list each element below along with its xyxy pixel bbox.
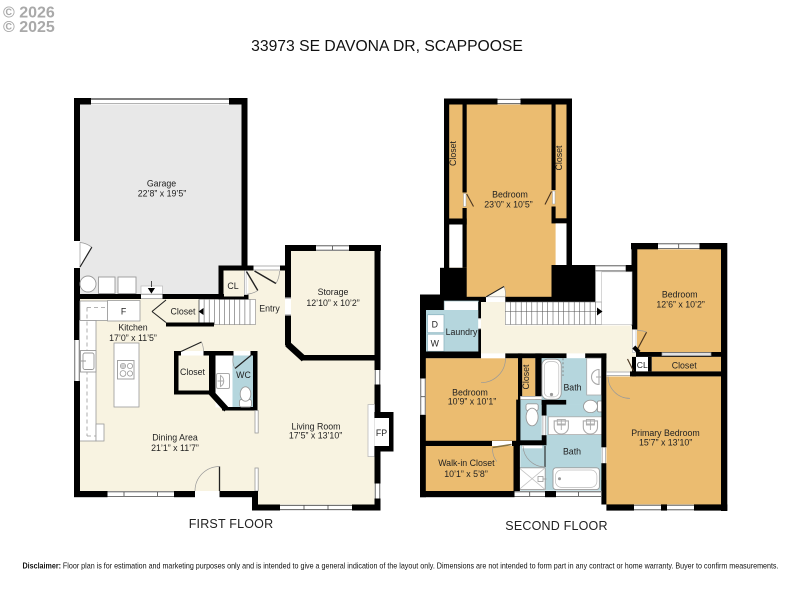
svg-text:D: D bbox=[432, 320, 438, 330]
svg-text:Laundry: Laundry bbox=[446, 327, 478, 337]
svg-text:W: W bbox=[431, 339, 440, 349]
svg-text:Closet: Closet bbox=[180, 367, 205, 377]
svg-text:Closet: Closet bbox=[521, 364, 531, 389]
svg-text:FIRST FLOOR: FIRST FLOOR bbox=[189, 517, 274, 531]
svg-text:17’0” x 11’5”: 17’0” x 11’5” bbox=[109, 333, 157, 343]
svg-text:Primary Bedroom: Primary Bedroom bbox=[631, 428, 699, 438]
svg-text:Bedroom: Bedroom bbox=[662, 290, 698, 300]
svg-text:Entry: Entry bbox=[259, 304, 280, 314]
svg-text:21’1” x 11’7”: 21’1” x 11’7” bbox=[151, 443, 199, 453]
svg-text:CL: CL bbox=[227, 281, 238, 291]
svg-text:Bath: Bath bbox=[563, 447, 581, 457]
svg-text:CL: CL bbox=[637, 360, 648, 370]
svg-text:FP: FP bbox=[376, 428, 387, 438]
svg-text:© 2025: © 2025 bbox=[3, 19, 55, 36]
svg-text:Storage: Storage bbox=[318, 287, 349, 297]
svg-text:12’10” x 10’2”: 12’10” x 10’2” bbox=[306, 298, 359, 308]
svg-text:17’5” x 13’10”: 17’5” x 13’10” bbox=[289, 431, 342, 441]
svg-text:Bedroom: Bedroom bbox=[492, 190, 528, 200]
svg-text:33973 SE DAVONA DR, SCAPPOOSE: 33973 SE DAVONA DR, SCAPPOOSE bbox=[251, 38, 523, 55]
svg-text:10’1” x 5’8”: 10’1” x 5’8” bbox=[444, 469, 488, 479]
svg-text:Disclaimer: Floor plan is for: Disclaimer: Floor plan is for estimation… bbox=[23, 561, 779, 571]
svg-text:23’0” x 10’5”: 23’0” x 10’5” bbox=[484, 200, 532, 210]
svg-text:12’6” x 10’2”: 12’6” x 10’2” bbox=[656, 300, 704, 310]
svg-text:Bath: Bath bbox=[563, 383, 581, 393]
svg-text:Dining Area: Dining Area bbox=[152, 433, 198, 443]
svg-text:Kitchen: Kitchen bbox=[118, 323, 147, 333]
svg-text:Closet: Closet bbox=[448, 140, 458, 165]
svg-text:Closet: Closet bbox=[554, 145, 564, 170]
svg-text:15’7” x 13’10”: 15’7” x 13’10” bbox=[639, 438, 692, 448]
svg-text:SECOND FLOOR: SECOND FLOOR bbox=[505, 519, 607, 533]
svg-text:F: F bbox=[121, 307, 127, 317]
svg-text:WC: WC bbox=[236, 370, 251, 380]
svg-text:10’9” x 10’1”: 10’9” x 10’1” bbox=[448, 397, 496, 407]
svg-text:Garage: Garage bbox=[147, 179, 176, 189]
svg-text:Closet: Closet bbox=[672, 360, 697, 370]
svg-text:22’8” x 19’5”: 22’8” x 19’5” bbox=[138, 189, 186, 199]
svg-text:Closet: Closet bbox=[171, 307, 196, 317]
svg-text:Walk-in Closet: Walk-in Closet bbox=[438, 458, 495, 468]
